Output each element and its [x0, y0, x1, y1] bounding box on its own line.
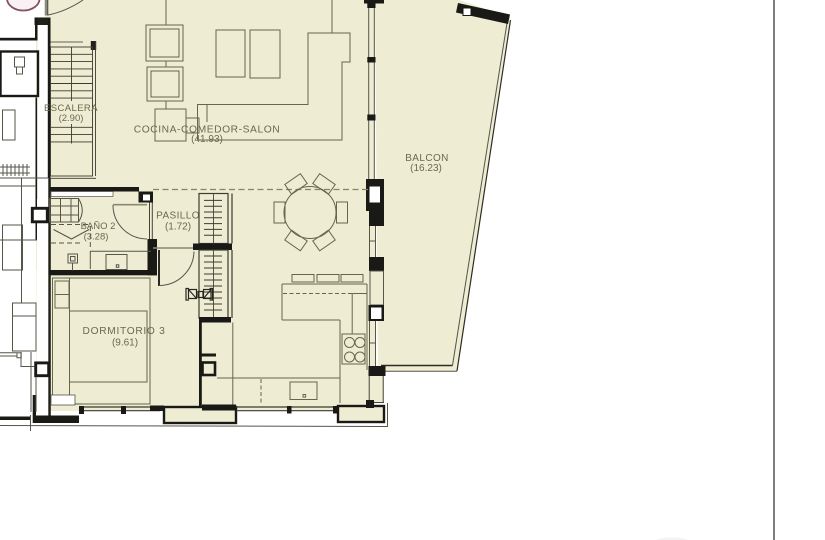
svg-text:(41.93): (41.93) — [191, 134, 223, 145]
svg-text:(2.90): (2.90) — [59, 113, 84, 124]
svg-text:DORMITORIO 3: DORMITORIO 3 — [83, 326, 166, 337]
svg-text:(9.61): (9.61) — [112, 338, 138, 349]
svg-text:BAÑO 2: BAÑO 2 — [81, 221, 116, 232]
svg-text:PASILLO: PASILLO — [156, 211, 200, 222]
svg-text:(1.72): (1.72) — [165, 222, 191, 233]
svg-text:(3.28): (3.28) — [84, 232, 109, 243]
svg-text:(16.23): (16.23) — [410, 163, 442, 174]
